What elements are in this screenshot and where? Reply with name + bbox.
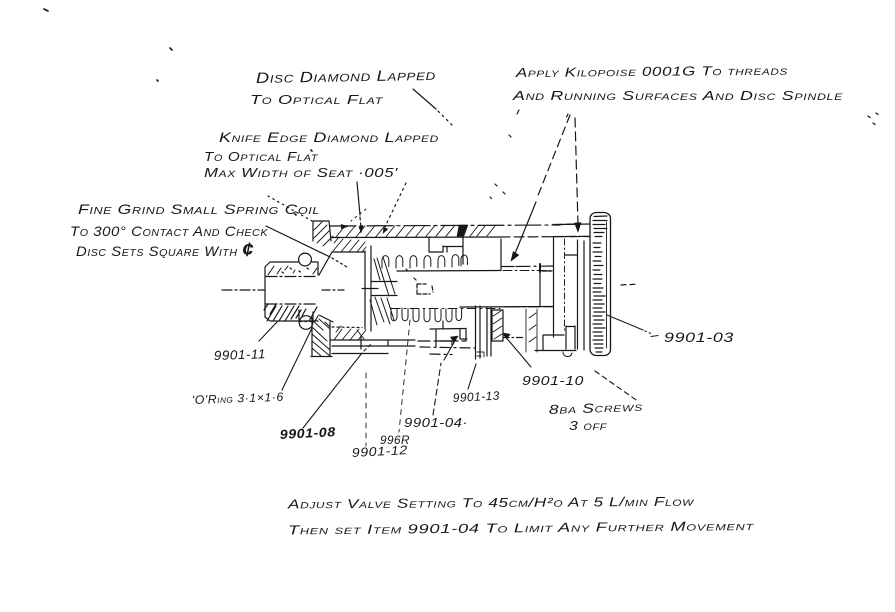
svg-text:9901-03: 9901-03 (664, 330, 734, 345)
svg-text:9901-08: 9901-08 (279, 424, 336, 442)
svg-text:Dısc Dıamond Lapped: Dısc Dıamond Lapped (256, 67, 436, 87)
svg-text:Max Wıdth of Seat ·005': Max Wıdth of Seat ·005' (204, 166, 398, 180)
svg-text:Dısc Sets Square Wıth ¢: Dısc Sets Square Wıth ¢ (76, 240, 254, 261)
svg-text:Knıfe Edge Dıamond Lapped: Knıfe Edge Dıamond Lapped (219, 130, 439, 145)
svg-text:To 300° Contact And Check: To 300° Contact And Check (70, 223, 269, 239)
svg-text:9901-13: 9901-13 (452, 389, 500, 405)
svg-text:Apply Kılopoıse 0001G To thre: Apply Kılopoıse 0001G To threads (515, 63, 788, 80)
svg-text:And Runnıng Surfaces And Dısc: And Runnıng Surfaces And Dısc Spındle (512, 88, 844, 103)
svg-text:996R: 996R (380, 433, 410, 447)
svg-text:Adjust Valve Settıng To 45cm/H: Adjust Valve Settıng To 45cm/H²o At 5 L/… (287, 494, 696, 512)
svg-text:To Optıcal Flat: To Optıcal Flat (204, 150, 319, 164)
svg-text:3 off: 3 off (569, 418, 607, 433)
svg-text:9901-10: 9901-10 (522, 373, 584, 388)
svg-text:To Optıcal Flat: To Optıcal Flat (250, 92, 384, 107)
svg-text:Fıne Grınd Small Sprıng Coıl: Fıne Grınd Small Sprıng Coıl (78, 201, 320, 217)
svg-text:9901-04·: 9901-04· (404, 415, 468, 430)
svg-text:9901-11: 9901-11 (214, 346, 266, 363)
